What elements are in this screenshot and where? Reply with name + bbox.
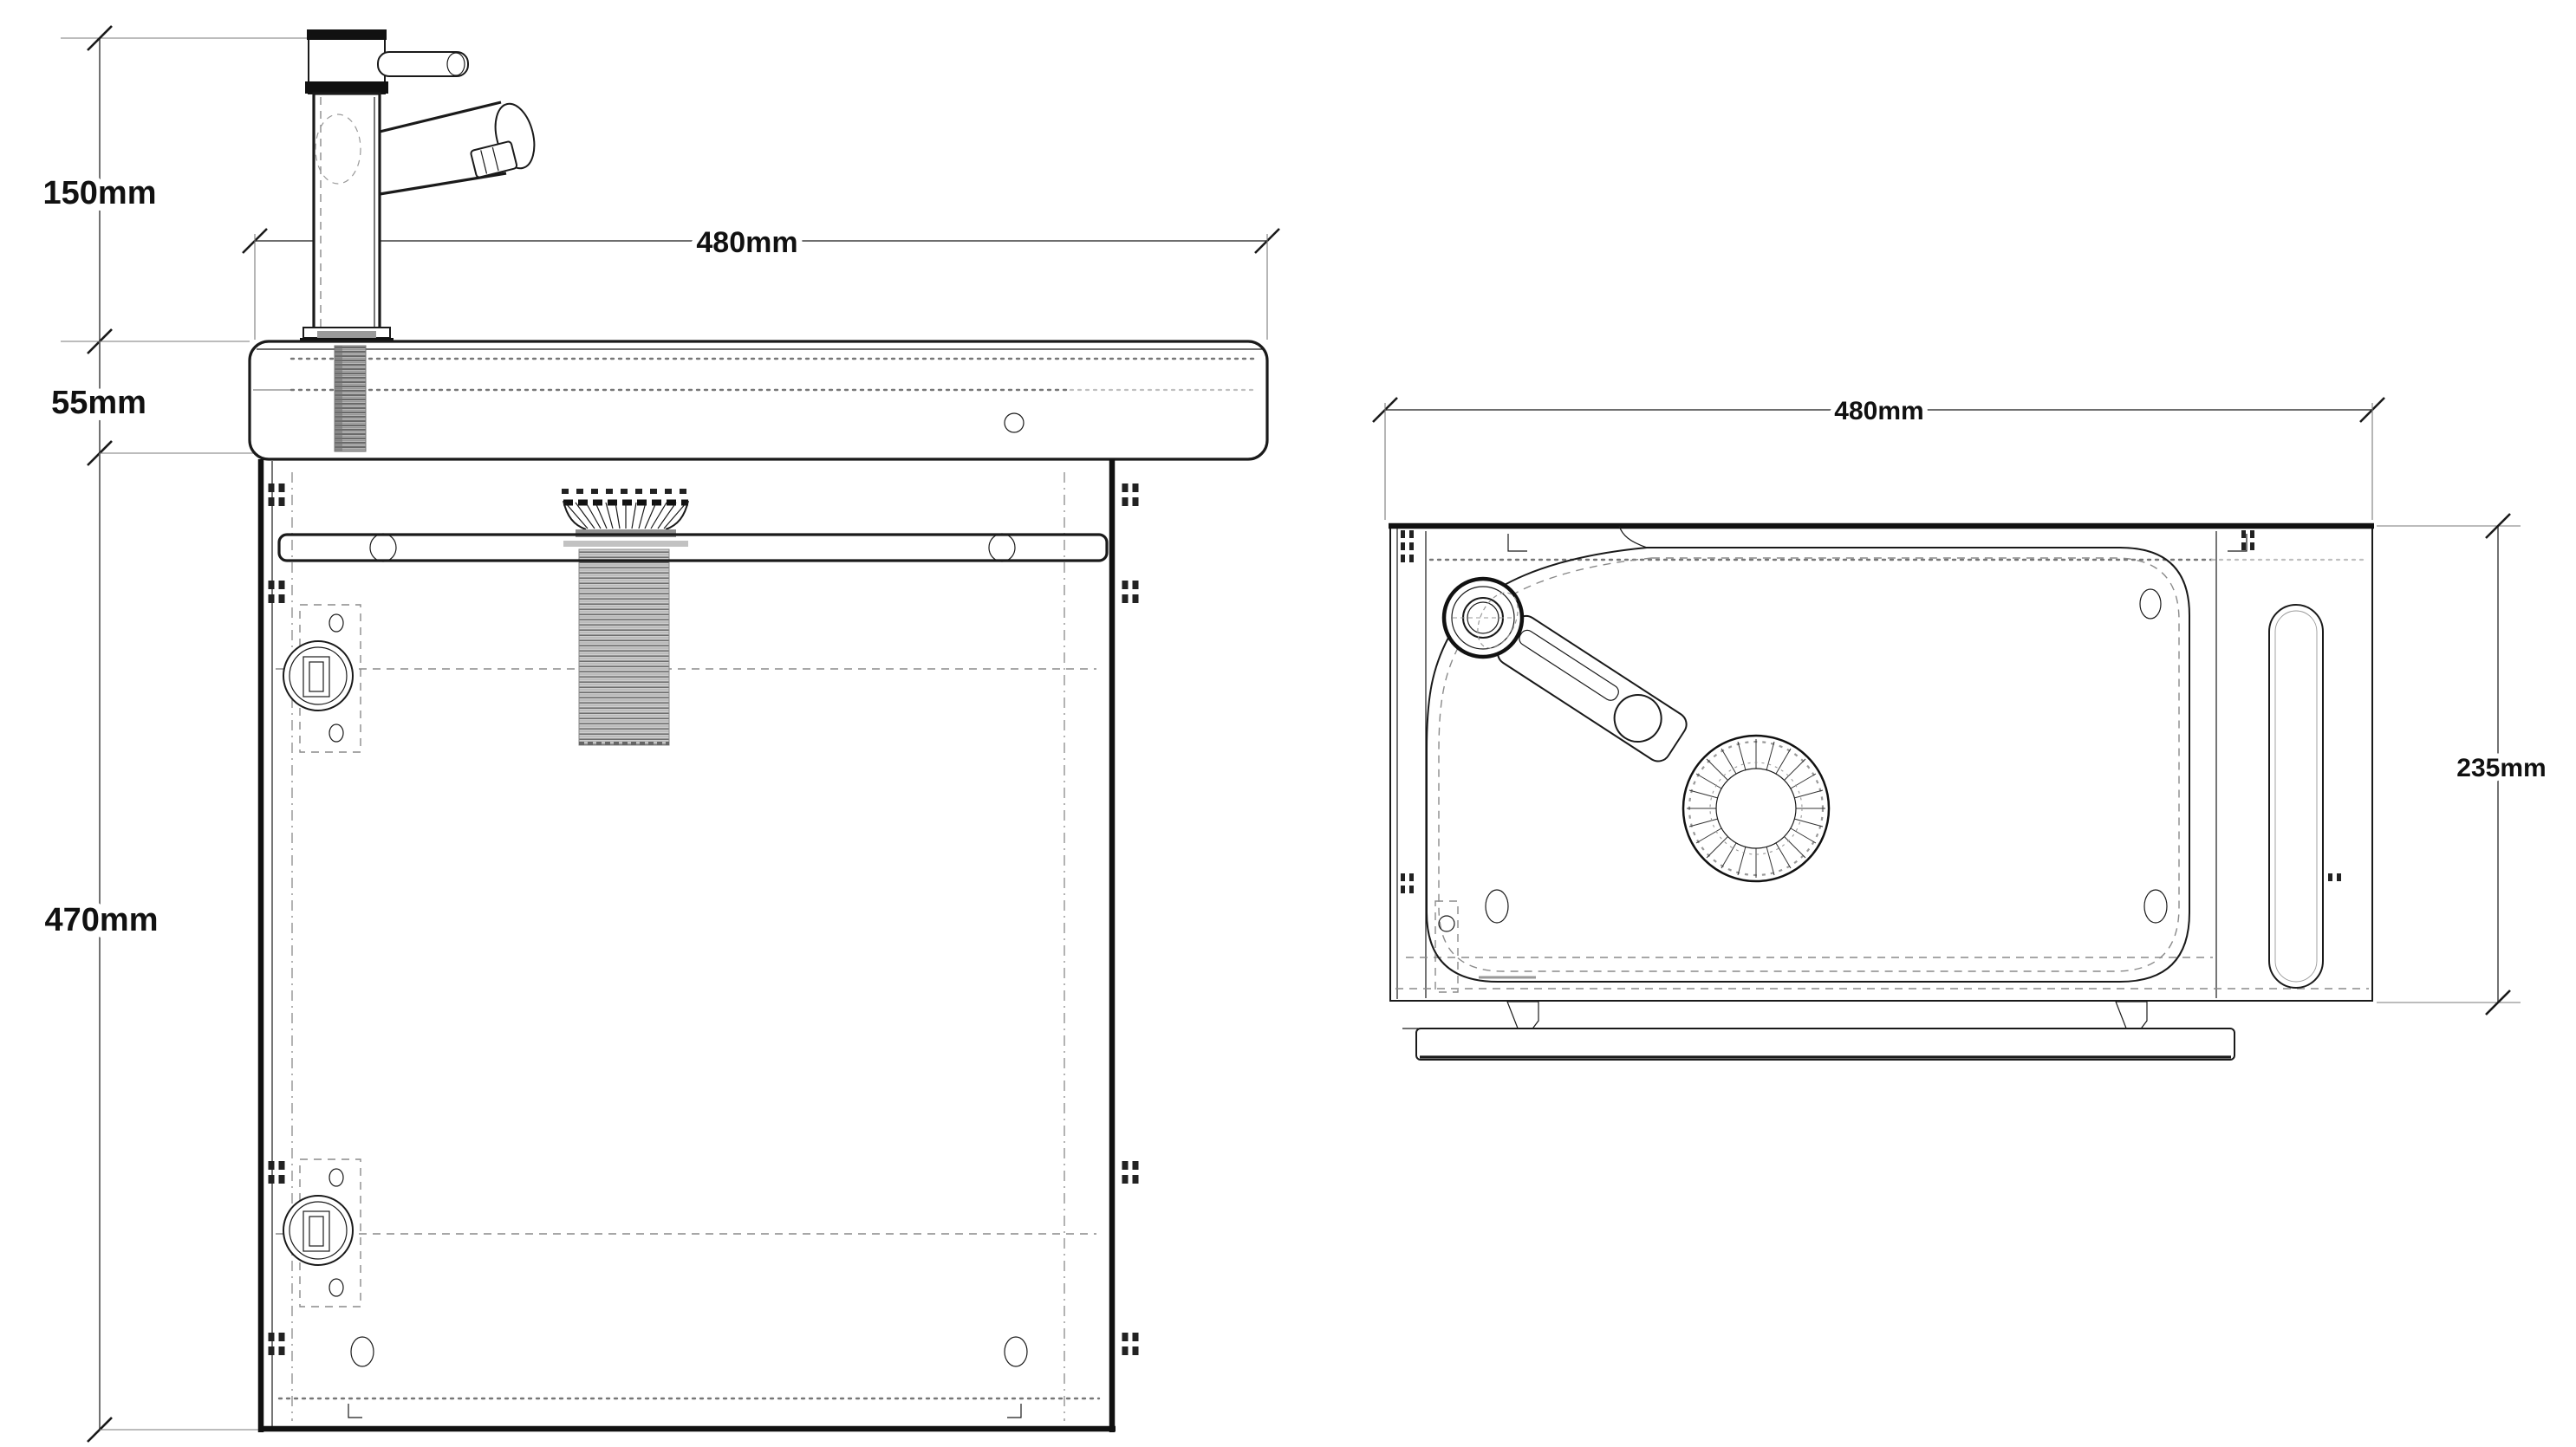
dim-label-plan-width: 480mm [1834, 397, 1923, 425]
dim-cabinet-height [88, 453, 260, 1442]
tap-collar-band [305, 81, 388, 94]
tap-body [314, 94, 380, 345]
waste-drain-plan [1683, 736, 1829, 881]
basin-front [250, 341, 1267, 459]
vanity-cabinet [258, 459, 1135, 1432]
tap-handle [378, 52, 468, 76]
basin-deck-plan [1389, 524, 2374, 1001]
wall-bracket-bar [1402, 1002, 2234, 1060]
tap-cap-top [307, 29, 387, 40]
dim-label-plan-depth: 235mm [2456, 754, 2546, 782]
dim-label-basin-thickness: 55mm [51, 385, 146, 421]
door-hinge-top [283, 605, 361, 752]
front-elevation-view: 150mm 55mm 470mm 480mm [43, 26, 1279, 1442]
waste-drain [562, 491, 690, 745]
spout-aerator [471, 141, 517, 178]
technical-drawing-sheet: 150mm 55mm 470mm 480mm [0, 0, 2576, 1447]
technical-drawing-canvas: 150mm 55mm 470mm 480mm [0, 0, 2576, 1447]
dim-label-tap-height: 150mm [43, 175, 157, 211]
towel-rail [279, 534, 1107, 561]
dim-label-cabinet-height: 470mm [45, 902, 159, 938]
dim-label-front-width: 480mm [696, 226, 797, 259]
door-hinge-bottom [283, 1159, 361, 1307]
carcase-fitting-marks [271, 483, 1135, 1360]
plan-view: 480mm 235mm [1373, 397, 2547, 1060]
drain-pipe [579, 549, 669, 745]
towel-slot-plan [2269, 605, 2323, 988]
